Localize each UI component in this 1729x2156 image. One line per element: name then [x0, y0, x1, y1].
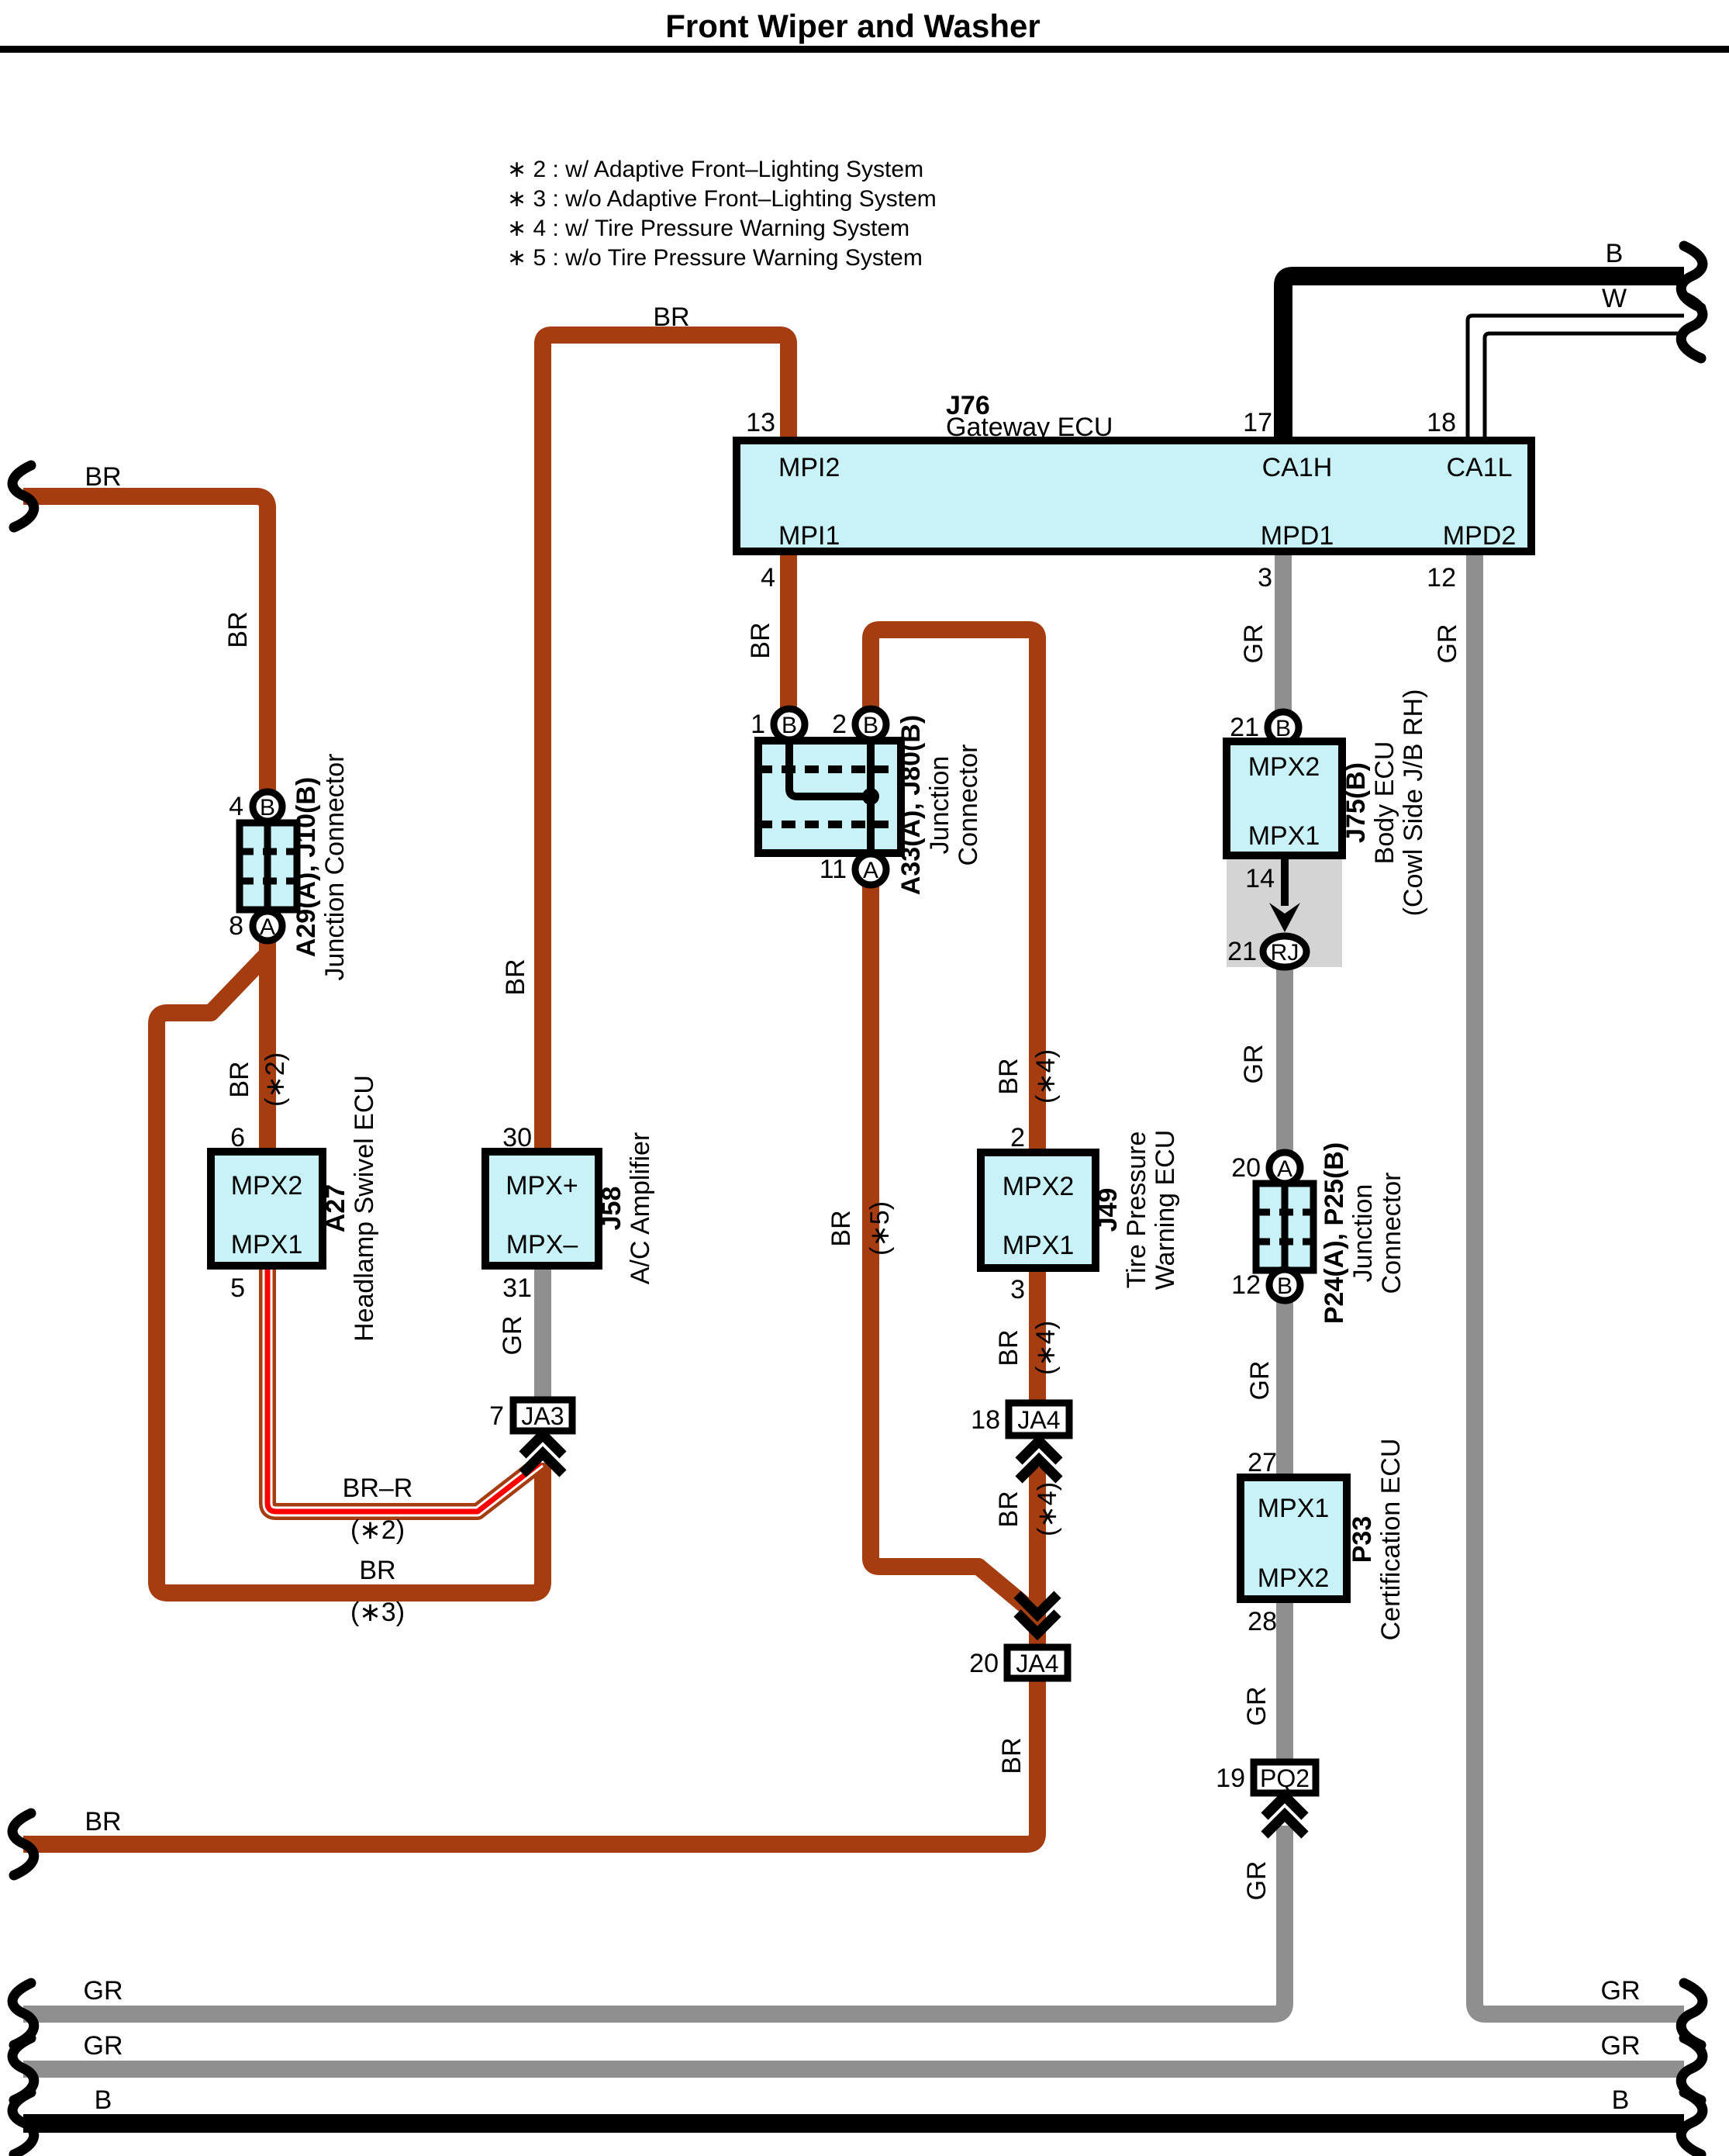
wire-gr-mpd2-to-right [1475, 551, 1684, 2014]
pq2-label: PQ2 [1260, 1764, 1310, 1792]
label-b-right: B [1612, 2085, 1630, 2115]
a33-letter-a: A [863, 858, 878, 883]
label-star5: (∗5) [865, 1201, 895, 1256]
p33-pin-27: 27 [1248, 1448, 1277, 1477]
j49-name: J49 [1093, 1188, 1123, 1232]
label-gr-p33-pq2: GR [1242, 1687, 1272, 1726]
wiring-diagram-page: Front Wiper and Washer ∗ 2 : w/ Adaptive… [0, 0, 1729, 2156]
brace-right-b [1681, 2092, 1703, 2154]
a33-desc1: Junction [925, 756, 954, 855]
p24-p25-junction-connector: A 20 B 12 P24(A), P25(B) Junction Connec… [1231, 1142, 1406, 1324]
legend-notes: ∗ 2 : w/ Adaptive Front–Lighting System … [507, 157, 937, 271]
label-gr-mpd1: GR [1239, 624, 1268, 664]
a27-pin-6: 6 [230, 1123, 245, 1152]
j76-mpd2: MPD2 [1443, 521, 1516, 551]
j58-desc: A/C Amplifier [626, 1132, 655, 1285]
j76-pin-12: 12 [1427, 563, 1456, 593]
ja3-splice: JA3 7 [489, 1400, 572, 1474]
j49-desc2: Warning ECU [1151, 1130, 1180, 1290]
label-br-top-left: BR [85, 462, 121, 492]
ja4-20-pin: 20 [969, 1649, 999, 1678]
p33-certification-ecu: MPX1 MPX2 27 28 P33 Certification ECU [1241, 1439, 1406, 1641]
label-br-top-middle: BR [653, 302, 689, 332]
label-gr-ja3: GR [498, 1316, 527, 1356]
wiring-diagram-svg: Front Wiper and Washer ∗ 2 : w/ Adaptive… [0, 0, 1729, 2156]
label-gr1-right: GR [1601, 1976, 1641, 2006]
a33-pin-1: 1 [751, 710, 765, 739]
ja4-18-label: JA4 [1017, 1406, 1060, 1434]
label-br-ja4-20: BR [997, 1737, 1027, 1774]
label-brr-star2: (∗2) [350, 1515, 405, 1545]
label-gr-pq2-down: GR [1242, 1861, 1272, 1901]
j75-mpx2: MPX2 [1248, 752, 1320, 782]
j75-mpx1: MPX1 [1248, 821, 1320, 851]
label-gr2-left: GR [84, 2031, 123, 2061]
label-brr: BR–R [343, 1474, 413, 1503]
j58-pin-31: 31 [502, 1273, 532, 1303]
a33-letter-b1: B [782, 713, 797, 738]
label-star4-top: (∗4) [1031, 1049, 1061, 1104]
j75-name: J75(B) [1341, 762, 1371, 843]
a33-pin-11: 11 [820, 855, 847, 884]
ja4-18-splice: JA4 18 [971, 1403, 1069, 1480]
j76-pin-17: 17 [1243, 408, 1272, 437]
wire-w-ca1l-inner [1485, 333, 1684, 441]
title-rule [0, 46, 1729, 53]
a33-name: A33(A), J80(B) [896, 715, 926, 895]
brace-left-b [12, 2092, 34, 2154]
p24-letter-a: A [1277, 1156, 1292, 1182]
label-gr2-right: GR [1601, 2031, 1641, 2061]
note-star5: ∗ 5 : w/o Tire Pressure Warning System [507, 245, 923, 271]
pq2-pin-19: 19 [1216, 1764, 1245, 1793]
label-star4-low: (∗4) [1033, 1482, 1062, 1536]
p24-letter-b: B [1277, 1273, 1292, 1299]
note-star2: ∗ 2 : w/ Adaptive Front–Lighting System [507, 157, 923, 182]
p33-mpx2: MPX2 [1258, 1563, 1330, 1593]
p33-name: P33 [1348, 1516, 1377, 1563]
label-br-star4-mid: BR [994, 1329, 1023, 1366]
j49-pin-2: 2 [1010, 1123, 1025, 1152]
j49-mpx2: MPX2 [1003, 1172, 1075, 1201]
p24-desc1: Junction [1348, 1184, 1378, 1283]
label-br-j58-column: BR [501, 959, 530, 995]
j49-desc1: Tire Pressure [1122, 1132, 1151, 1289]
ja3-label: JA3 [521, 1402, 564, 1430]
j76-mpi2: MPI2 [778, 453, 840, 482]
j75-body-ecu: B 21 MPX2 MPX1 14 RJ 21 J75(B) Body ECU … [1227, 689, 1428, 967]
label-br-a29-top: BR [223, 611, 253, 648]
label-br-a27: BR [225, 1061, 254, 1097]
p24-desc2: Connector [1377, 1173, 1406, 1294]
j76-pin-4: 4 [761, 563, 775, 593]
j75-desc2: (Cowl Side J/B RH) [1399, 689, 1428, 917]
label-gr-rj-p24: GR [1239, 1045, 1268, 1084]
brace-left-br-top [12, 465, 34, 527]
j76-pin-3: 3 [1258, 563, 1272, 593]
a27-name: A27 [321, 1184, 350, 1232]
p24-pin-20: 20 [1231, 1153, 1261, 1183]
brace-right-w-top [1681, 296, 1703, 358]
a27-desc: Headlamp Swivel ECU [350, 1075, 379, 1342]
a29-desc: Junction Connector [320, 754, 350, 981]
label-br-bottom: BR [85, 1807, 121, 1836]
a33-j80-junction-connector: B 1 B 2 A 11 A33(A), J80(B) Junction Con… [751, 709, 983, 895]
ja3-pin-7: 7 [489, 1401, 504, 1431]
a27-headlamp-swivel-ecu: MPX2 MPX1 6 5 A27 Headlamp Swivel ECU [211, 1075, 379, 1342]
a29-name: A29(A), J10(B) [292, 777, 321, 957]
p33-mpx1: MPX1 [1258, 1494, 1330, 1523]
a29-j10-junction-connector: B 4 A 8 A29(A), J10(B) Junction Connecto… [229, 754, 350, 981]
j58-pin-30: 30 [502, 1123, 532, 1152]
p24-name: P24(A), P25(B) [1320, 1142, 1349, 1324]
a29-pin-4: 4 [229, 792, 243, 821]
j58-mpx-minus: MPX– [506, 1230, 578, 1259]
j75-rj-label: RJ [1271, 940, 1299, 966]
j49-tire-pressure-warning-ecu: MPX2 MPX1 2 3 J49 Tire Pressure Warning … [981, 1123, 1180, 1304]
j75-desc1: Body ECU [1370, 741, 1399, 865]
a33-pin-2: 2 [832, 710, 847, 739]
label-b-top: B [1606, 239, 1624, 268]
p24-pin-12: 12 [1231, 1270, 1261, 1300]
label-br-star4-low: BR [994, 1491, 1023, 1527]
j76-pin-18: 18 [1427, 408, 1456, 437]
j76-ca1h: CA1H [1262, 453, 1333, 482]
a27-mpx2: MPX2 [231, 1171, 303, 1201]
label-gr1-left: GR [84, 1976, 123, 2006]
label-gr-p24-p33: GR [1245, 1361, 1275, 1401]
label-star4-mid: (∗4) [1031, 1321, 1061, 1375]
j76-mpd1: MPD1 [1261, 521, 1334, 551]
a29-letter-a: A [260, 914, 275, 940]
ja4-20-label: JA4 [1016, 1650, 1058, 1677]
note-star3: ∗ 3 : w/o Adaptive Front–Lighting System [507, 186, 937, 212]
label-star2-a27: (∗2) [261, 1052, 290, 1107]
label-w-top: W [1602, 284, 1627, 313]
wire-gr-pq2-to-left [23, 1826, 1285, 2014]
a33-junction-dot [862, 788, 879, 805]
j76-pin-13: 13 [746, 408, 775, 437]
j58-name: J58 [597, 1187, 626, 1231]
label-br-mpi1: BR [746, 622, 775, 658]
j49-pin-3: 3 [1010, 1275, 1025, 1304]
label-br-star5: BR [827, 1210, 856, 1246]
a33-desc2: Connector [954, 745, 983, 866]
j58-ac-amplifier: MPX+ MPX– 30 31 J58 A/C Amplifier [485, 1123, 655, 1303]
a29-pin-8: 8 [229, 911, 243, 941]
a27-mpx1: MPX1 [231, 1230, 303, 1259]
a33-letter-b2: B [863, 713, 878, 738]
j75-pin-14: 14 [1245, 864, 1275, 893]
p33-desc: Certification ECU [1376, 1439, 1406, 1641]
label-b-left: B [95, 2085, 112, 2115]
label-br-star3: BR [359, 1556, 395, 1585]
a29-letter-b: B [260, 795, 275, 821]
j76-mpi1: MPI1 [778, 521, 840, 551]
j76-box [737, 441, 1531, 551]
ja4-18-pin: 18 [971, 1405, 1000, 1435]
note-star4: ∗ 4 : w/ Tire Pressure Warning System [507, 216, 909, 241]
label-star3: (∗3) [350, 1598, 405, 1627]
label-gr-mpd2: GR [1433, 624, 1462, 664]
label-br-star4-top: BR [994, 1058, 1023, 1094]
j49-mpx1: MPX1 [1003, 1231, 1075, 1260]
a27-pin-5: 5 [230, 1273, 245, 1303]
j58-mpx-plus: MPX+ [506, 1171, 578, 1201]
brace-left-br-bottom [12, 1813, 34, 1875]
wire-br-ja4-to-left [23, 1677, 1037, 1844]
page-title: Front Wiper and Washer [665, 8, 1040, 44]
j75-rj-pin-21: 21 [1227, 937, 1257, 966]
j76-ca1l: CA1L [1446, 453, 1512, 482]
pq2-splice: PQ2 19 [1216, 1762, 1316, 1835]
p33-pin-28: 28 [1248, 1607, 1277, 1636]
j76-gateway-ecu: J76 Gateway ECU MPI2 MPI1 CA1H MPD1 CA1L… [737, 391, 1531, 593]
